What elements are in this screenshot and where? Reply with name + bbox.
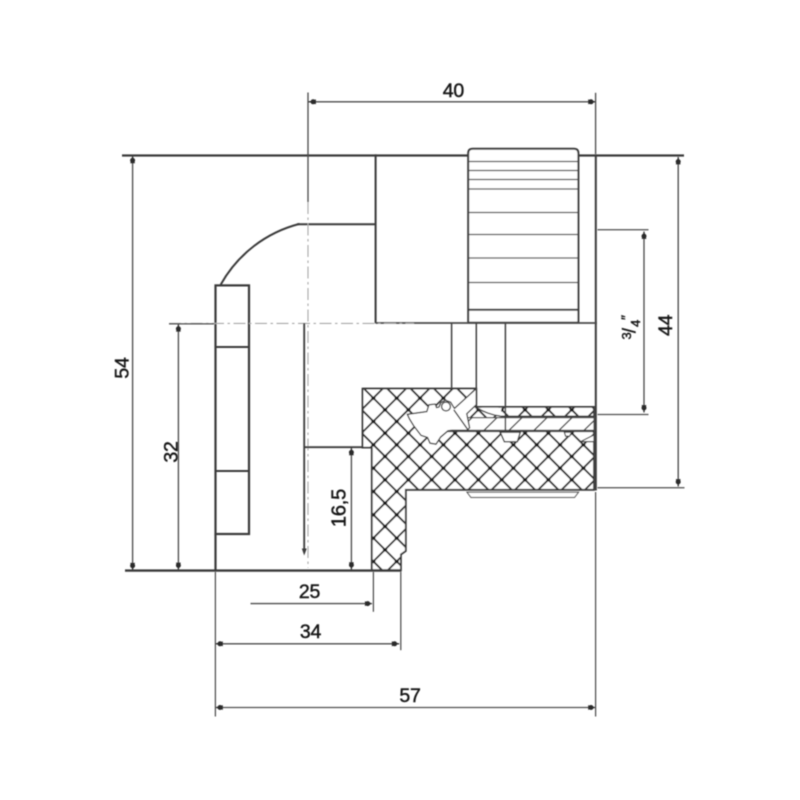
svg-text:34: 34 (300, 621, 322, 643)
svg-text:32: 32 (160, 441, 182, 462)
svg-text:/: / (620, 328, 640, 333)
svg-text:57: 57 (399, 685, 420, 707)
svg-text:44: 44 (655, 314, 677, 336)
svg-text:54: 54 (112, 357, 134, 379)
svg-text:25: 25 (299, 581, 321, 603)
svg-text:″: ″ (618, 315, 634, 320)
svg-text:4: 4 (628, 320, 643, 327)
svg-text:40: 40 (443, 80, 465, 102)
svg-text:16,5: 16,5 (329, 489, 351, 527)
